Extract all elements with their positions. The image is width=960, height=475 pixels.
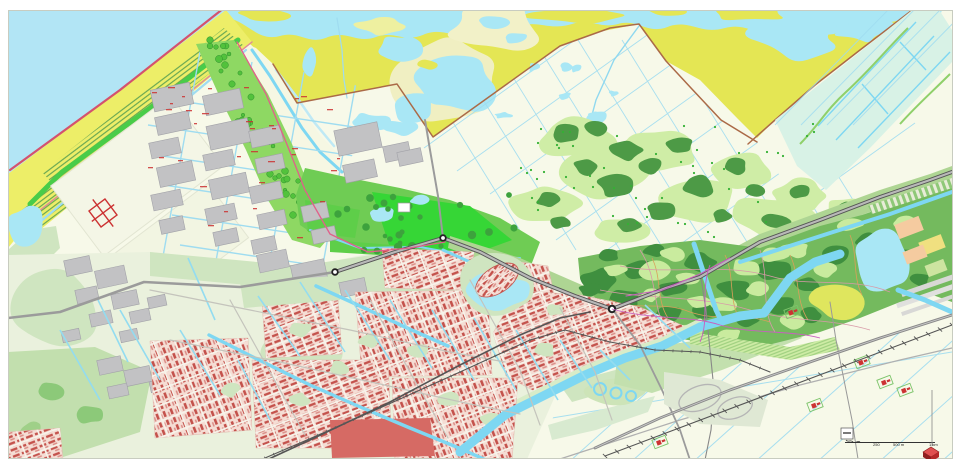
svg-text:1 km: 1 km <box>929 442 938 447</box>
svg-text:250: 250 <box>873 442 880 447</box>
svg-text:500 m: 500 m <box>893 442 905 447</box>
